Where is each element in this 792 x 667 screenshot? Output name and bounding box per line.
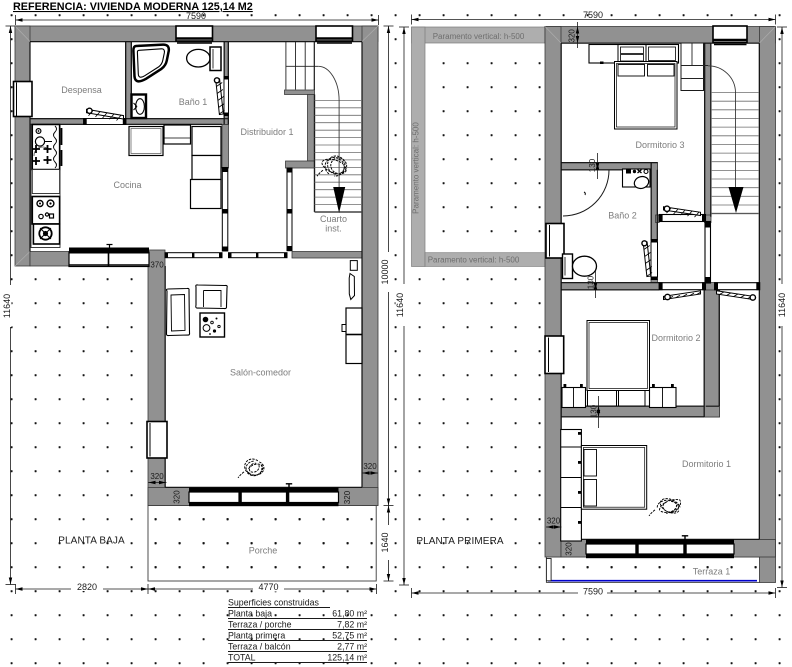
svg-text:Cocina: Cocina [113,180,141,190]
svg-text:Paramento vertical: h-500: Paramento vertical: h-500 [433,32,525,41]
svg-text:Paramento vertical: h-500: Paramento vertical: h-500 [411,122,420,214]
svg-text:130: 130 [587,275,596,289]
svg-text:7590: 7590 [186,11,206,21]
svg-text:PLANTA PRIMERA: PLANTA PRIMERA [416,536,504,547]
svg-text:REFERENCIA: VIVIENDA MODERNA 1: REFERENCIA: VIVIENDA MODERNA 125,14 M2 [13,1,253,13]
svg-text:Superficies construidas: Superficies construidas [228,598,320,608]
svg-text:Paramento vertical: h-500: Paramento vertical: h-500 [428,256,520,265]
svg-text:4770: 4770 [258,582,278,592]
svg-text:52,75 m²: 52,75 m² [332,631,367,641]
svg-text:Cuarto: Cuarto [320,214,347,224]
svg-text:320: 320 [547,517,561,526]
svg-text:11640: 11640 [2,294,12,318]
svg-text:Terraza / balcón: Terraza / balcón [228,642,291,652]
svg-text:7590: 7590 [583,10,603,20]
svg-text:Dormitorio 1: Dormitorio 1 [682,459,731,469]
svg-text:7590: 7590 [583,587,603,597]
svg-text:Planta baja: Planta baja [228,609,272,619]
svg-text:11640: 11640 [777,293,787,317]
svg-text:320: 320 [343,490,352,504]
svg-text:2,77 m²: 2,77 m² [337,642,367,652]
svg-text:320: 320 [565,542,574,556]
svg-text:370: 370 [150,261,164,270]
svg-text:Dormitorio 3: Dormitorio 3 [635,140,684,150]
svg-text:320: 320 [150,472,164,481]
svg-text:Porche: Porche [249,546,278,556]
svg-text:1640: 1640 [380,532,390,552]
svg-text:10000: 10000 [380,259,390,284]
svg-text:inst.: inst. [325,224,342,234]
svg-text:320: 320 [568,29,577,43]
svg-text:Distribuidor 1: Distribuidor 1 [240,127,293,137]
svg-text:125,14 m²: 125,14 m² [327,653,367,663]
svg-text:130: 130 [588,158,597,172]
svg-text:320: 320 [173,490,182,504]
svg-text:Despensa: Despensa [61,85,102,95]
svg-text:PLANTA BAJA: PLANTA BAJA [58,536,125,547]
svg-text:2820: 2820 [77,582,97,592]
svg-text:Dormitorio 2: Dormitorio 2 [651,333,700,343]
svg-text:7,82 m²: 7,82 m² [337,620,367,630]
svg-text:Terraza / porche: Terraza / porche [228,620,292,630]
svg-text:Planta primera: Planta primera [228,631,285,641]
svg-text:TOTAL: TOTAL [228,653,256,663]
svg-text:Terraza 1: Terraza 1 [693,567,731,577]
svg-text:11640: 11640 [395,293,405,317]
svg-text:Salón-comedor: Salón-comedor [230,368,291,378]
svg-text:Baño 2: Baño 2 [608,211,637,221]
svg-text:320: 320 [363,462,377,471]
svg-text:Baño 1: Baño 1 [179,97,208,107]
svg-text:61,80 m²: 61,80 m² [332,609,367,619]
